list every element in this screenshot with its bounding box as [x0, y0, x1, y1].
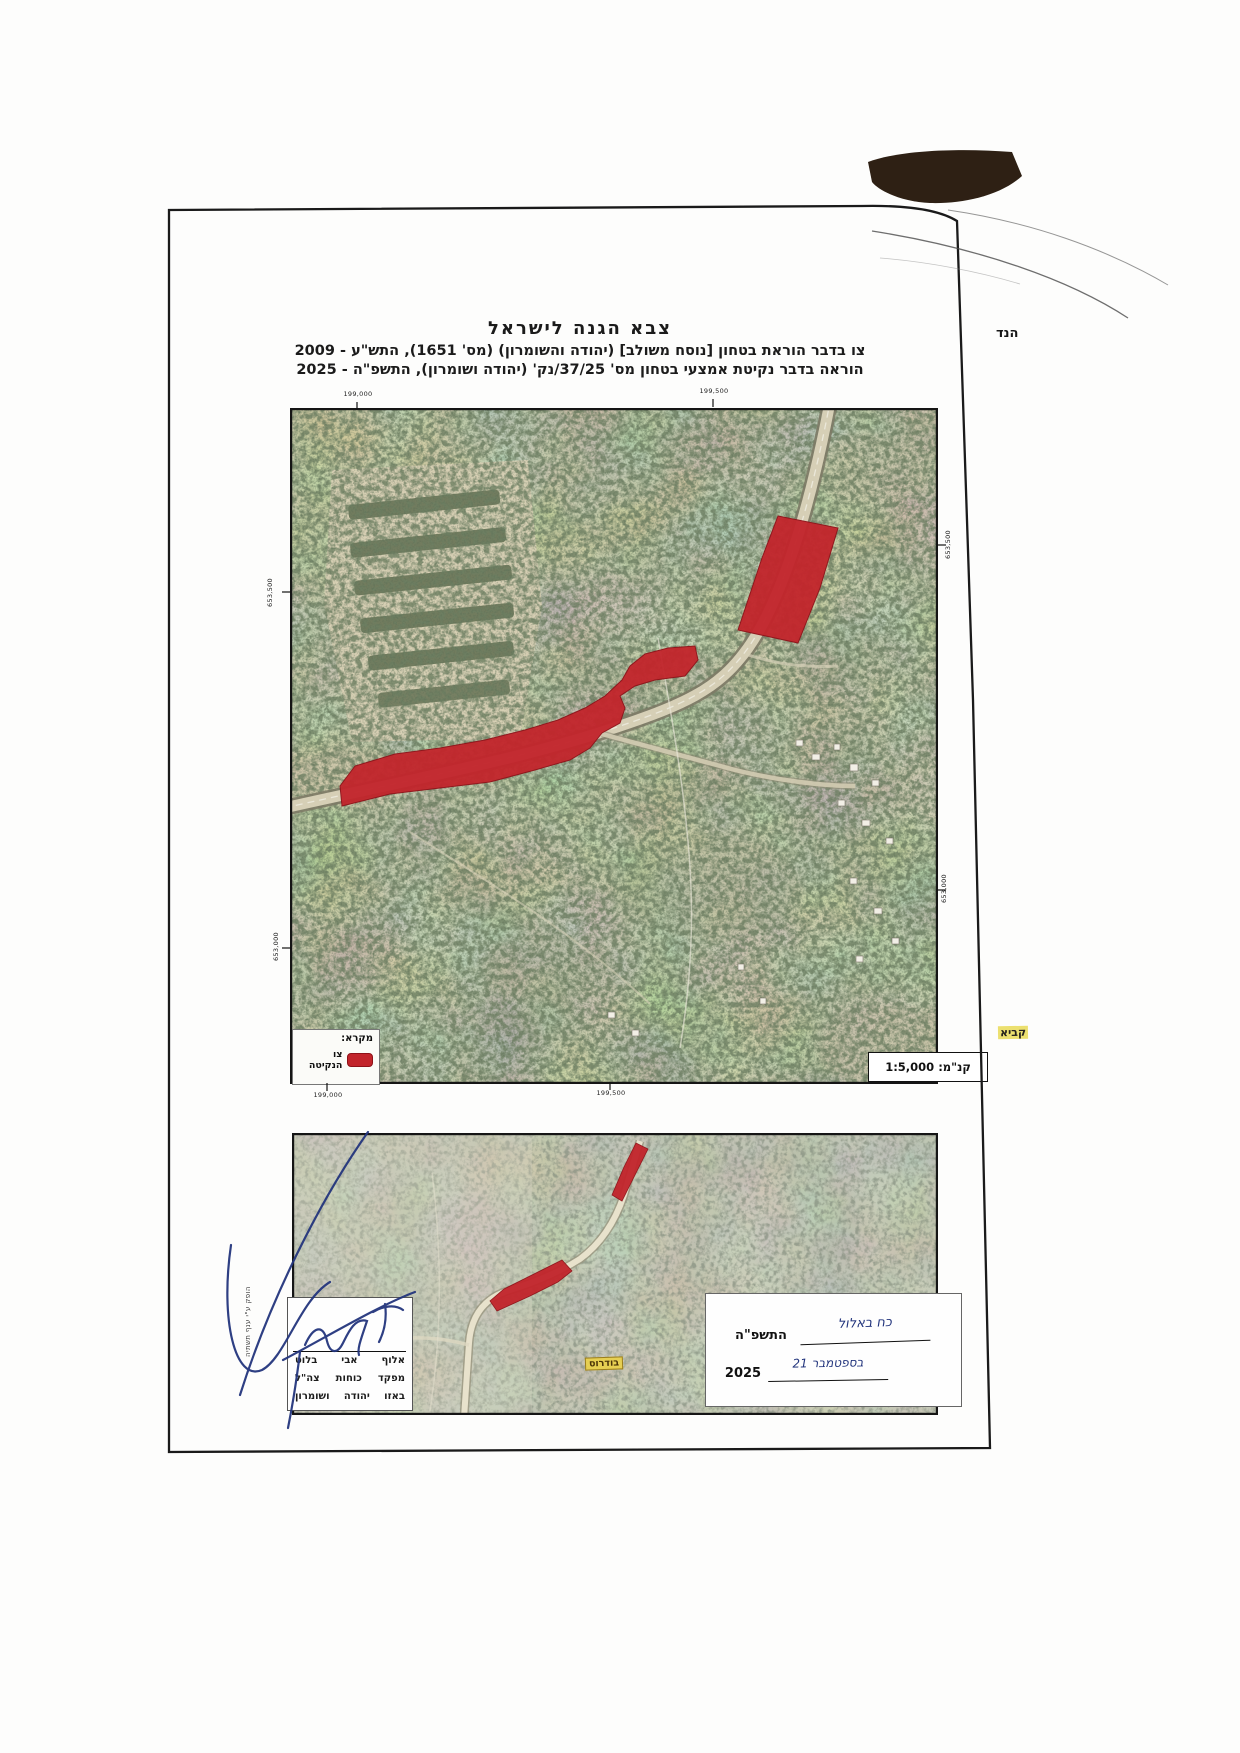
scanned-document-page: צבא הגנה לישראל צו בדבר הוראת בטחון [נוס… — [0, 0, 1240, 1753]
margin-note-left-vertical: הופק ע"י ענף תשתיה — [244, 1286, 252, 1436]
grid-label-right-lower: 653,000 — [940, 866, 948, 912]
grid-label-top-right: 199,500 — [688, 387, 740, 395]
date-box — [705, 1293, 962, 1407]
grid-label-bottom-left: 199,000 — [302, 1091, 354, 1099]
hebrew-date-handwritten: כח באלול — [800, 1314, 931, 1346]
map-scale-box: קנ"מ: 1:5,000 — [868, 1052, 988, 1082]
grid-label-bottom-right: 199,500 — [585, 1089, 637, 1097]
gregorian-date-handwritten: 21 בספטמבר — [768, 1355, 888, 1382]
scan-artifact-wedge — [868, 150, 1022, 203]
gregorian-year-printed: 2025 — [720, 1366, 766, 1381]
terrain-fine-speckle — [290, 408, 938, 1084]
place-label-budrus: בודרוס — [585, 1356, 624, 1370]
order-title-line: צו בדבר הוראת בטחון [נוסח משולב] (יהודה … — [220, 343, 940, 359]
army-title: צבא הגנה לישראל — [220, 318, 940, 339]
document-header: צבא הגנה לישראל צו בדבר הוראת בטחון [נוס… — [220, 318, 940, 378]
grid-label-left-upper: 653,500 — [266, 570, 274, 616]
signature-line — [293, 1351, 406, 1352]
grid-label-right-upper: 653,500 — [944, 522, 952, 568]
instruction-title-line: הוראה בדבר נקיטת אמצעי בטחון מס' 37/25/נ… — [220, 362, 940, 378]
grid-label-left-lower: 653,000 — [272, 924, 280, 970]
map-legend: מקרא: צו הנקיטה — [292, 1029, 380, 1085]
place-label-qibya: קביא — [998, 1026, 1028, 1040]
signatory-rank-name: אלוף אבי בלוט — [289, 1355, 411, 1366]
scan-curl-lines — [872, 210, 1168, 318]
signatory-title: מפקד כוחות צה"ל — [289, 1373, 411, 1384]
legend-title: מקרא: — [297, 1033, 373, 1044]
signatory-region: באזו יהודה ושומרון — [289, 1391, 411, 1402]
grid-label-top-left: 199,000 — [332, 390, 384, 398]
margin-note-right: הנד — [996, 326, 1018, 341]
legend-red-swatch — [347, 1053, 373, 1067]
hebrew-year-printed: התשפ"ה — [726, 1328, 796, 1343]
aerial-map-top — [290, 408, 938, 1084]
legend-item-label: צו הנקיטה — [297, 1049, 342, 1071]
aerial-map-top-svg — [290, 408, 938, 1084]
